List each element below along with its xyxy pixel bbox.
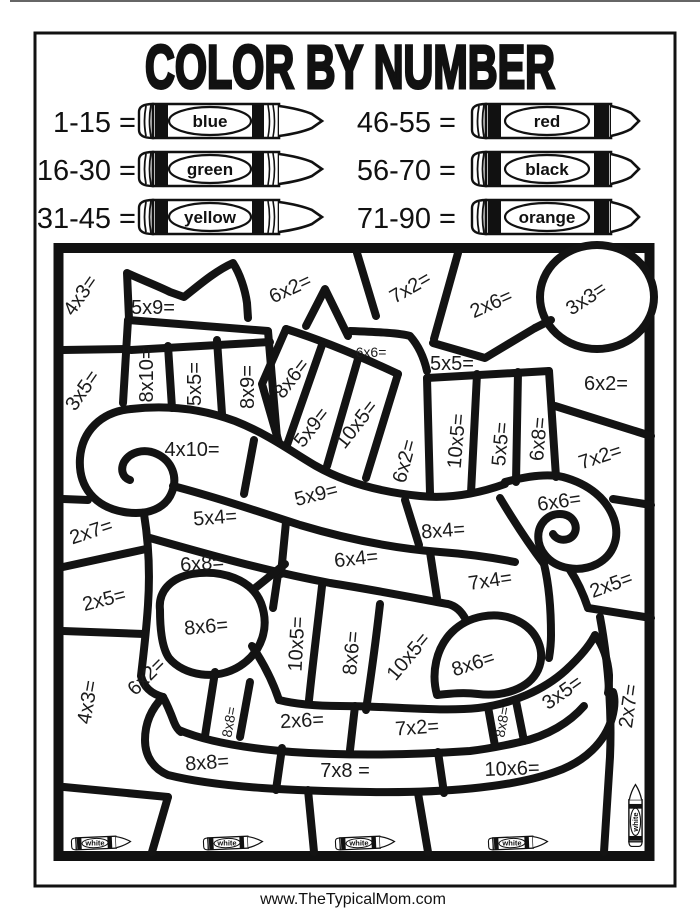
svg-text:white: white [631, 812, 640, 832]
svg-text:white: white [84, 839, 104, 848]
svg-text:6x6=: 6x6= [356, 344, 387, 360]
svg-text:8x8=: 8x8= [184, 750, 229, 775]
svg-text:green: green [187, 160, 233, 179]
svg-text:www.TheTypicalMom.com: www.TheTypicalMom.com [259, 891, 446, 908]
svg-text:16-30 =: 16-30 = [37, 155, 136, 187]
svg-text:orange: orange [519, 208, 576, 227]
svg-text:7x8 =: 7x8 = [320, 760, 369, 782]
svg-text:8x6=: 8x6= [183, 614, 229, 640]
svg-text:white: white [501, 839, 521, 848]
svg-text:2x6=: 2x6= [280, 709, 325, 733]
svg-text:COLOR BY NUMBER: COLOR BY NUMBER [145, 33, 555, 101]
svg-text:red: red [534, 112, 560, 131]
svg-text:black: black [525, 160, 569, 179]
svg-text:5x9=: 5x9= [131, 297, 175, 319]
svg-text:1-15 =: 1-15 = [53, 107, 136, 139]
svg-text:31-45 =: 31-45 = [37, 203, 136, 235]
svg-text:blue: blue [193, 112, 228, 131]
svg-text:56-70 =: 56-70 = [357, 155, 456, 187]
svg-text:6x4=: 6x4= [333, 546, 379, 572]
svg-text:5x5=: 5x5= [430, 353, 474, 375]
svg-text:8x9=: 8x9= [237, 365, 259, 409]
svg-text:white: white [348, 839, 368, 848]
svg-text:4x10=: 4x10= [164, 439, 219, 461]
svg-text:5x4=: 5x4= [192, 505, 237, 530]
svg-text:white: white [216, 839, 236, 848]
svg-text:10x6=: 10x6= [484, 757, 540, 781]
svg-text:46-55 =: 46-55 = [357, 107, 456, 139]
svg-text:8x10=: 8x10= [136, 347, 158, 402]
svg-text:71-90 =: 71-90 = [357, 203, 456, 235]
svg-text:6x8=: 6x8= [179, 551, 224, 576]
svg-text:6x2=: 6x2= [584, 373, 628, 395]
svg-text:5x5=: 5x5= [488, 421, 514, 467]
svg-text:8x4=: 8x4= [420, 518, 465, 543]
svg-text:10x5=: 10x5= [285, 616, 310, 672]
svg-text:6x8=: 6x8= [526, 416, 552, 462]
svg-text:7x2=: 7x2= [394, 715, 439, 740]
svg-text:yellow: yellow [184, 208, 237, 227]
svg-text:8x6=: 8x6= [339, 630, 365, 676]
svg-text:5x5=: 5x5= [184, 362, 206, 406]
